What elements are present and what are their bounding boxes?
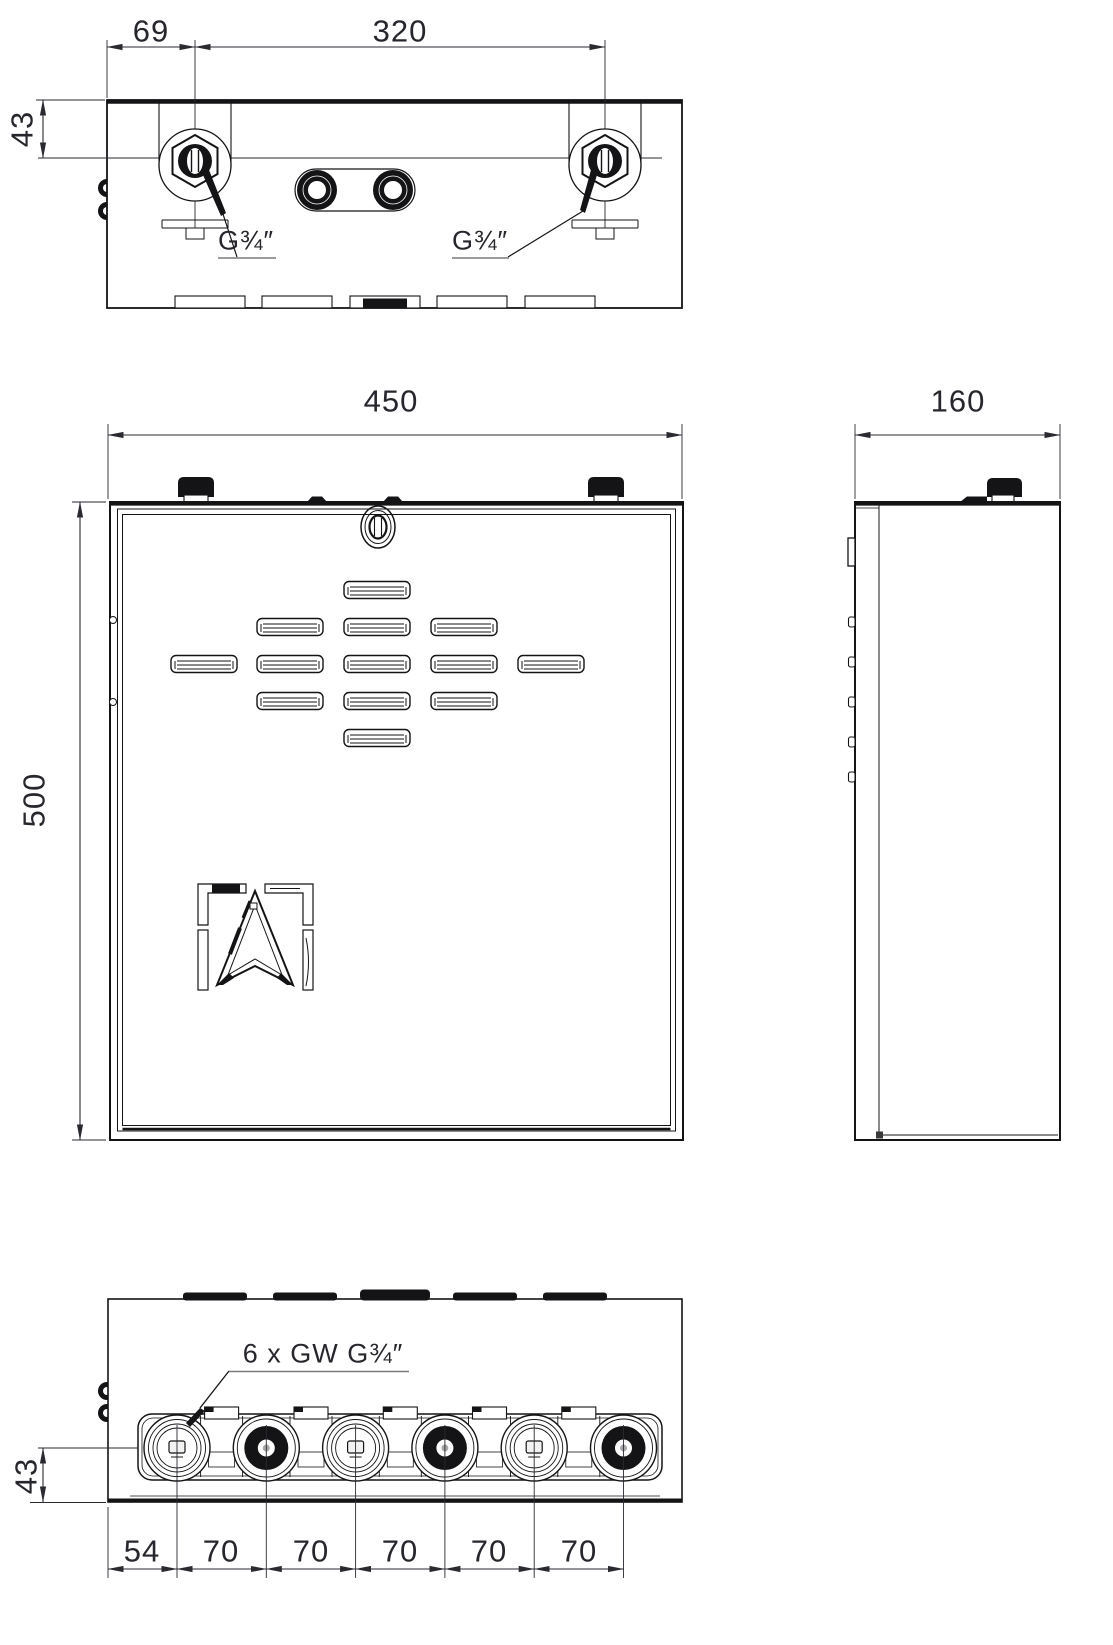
technical-drawing-page: 69 320 43 G¾″ G¾″ 450 500 160 6 x GW G¾″… (0, 0, 1113, 1645)
label-bottom-connections: 6 x GW G¾″ (243, 1341, 404, 1368)
top-middle-ports (295, 169, 415, 211)
hinge-pin-upper (110, 617, 117, 624)
dim-front-height: 500 (19, 773, 50, 828)
drawing-linework (0, 0, 1113, 1645)
label-port-left: G¾″ (218, 228, 274, 255)
dim-pitch-1: 70 (203, 1536, 239, 1567)
dim-pitch-4: 70 (471, 1536, 507, 1567)
dim-top-spacing: 320 (373, 16, 428, 47)
mounting-knob-right (588, 477, 624, 502)
dim-top-depth: 43 (7, 111, 38, 147)
top-view (36, 40, 682, 308)
dim-pitch-5: 70 (561, 1536, 597, 1567)
dim-front-width: 450 (364, 386, 419, 417)
hinge-pin-lower (110, 699, 117, 706)
side-view (848, 424, 1060, 1140)
mounting-knob-left (178, 477, 214, 502)
top-view-rail-tabs (175, 296, 595, 308)
dim-pitch-3: 70 (382, 1536, 418, 1567)
front-view (72, 424, 683, 1140)
bottom-rail-tabs (183, 1290, 607, 1301)
side-latch (848, 538, 855, 566)
dim-pitch-2: 70 (293, 1536, 329, 1567)
label-port-right: G¾″ (452, 228, 508, 255)
dim-bottom-height: 43 (11, 1458, 42, 1494)
dim-top-offset: 69 (133, 16, 169, 47)
dim-side-depth: 160 (931, 386, 986, 417)
side-knob (987, 478, 1022, 502)
dim-pitch-0: 54 (124, 1536, 160, 1567)
